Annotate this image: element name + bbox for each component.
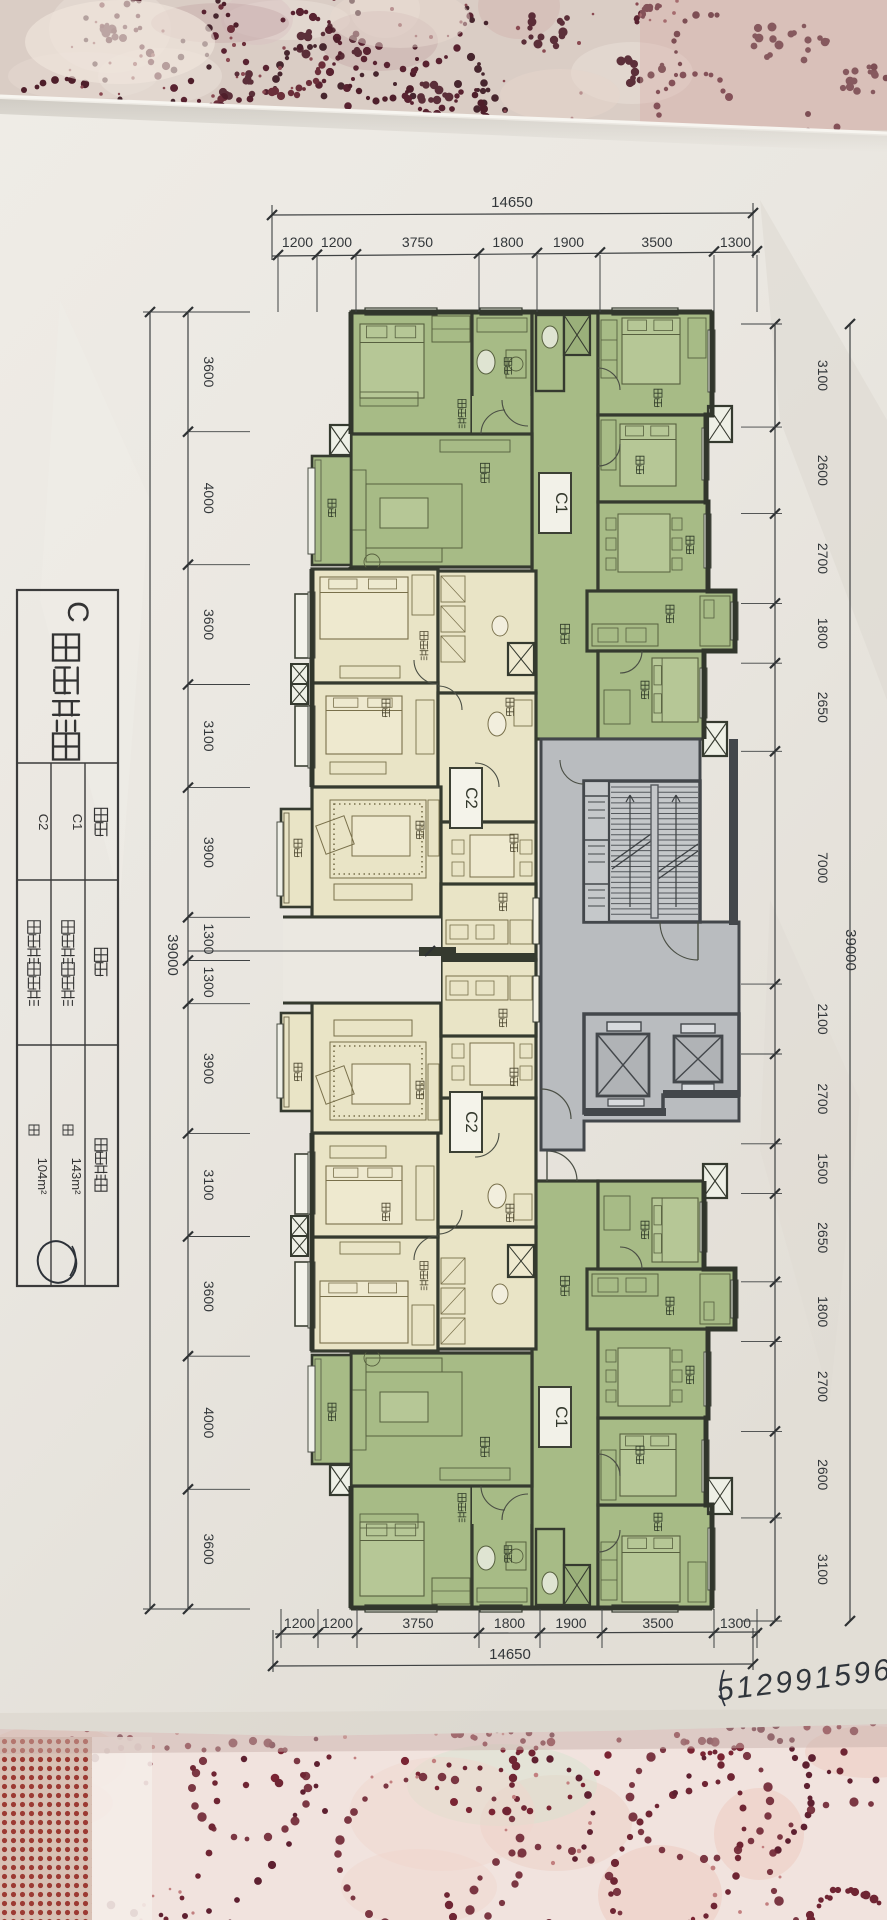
svg-text:3750: 3750 xyxy=(402,234,433,250)
svg-text:2100: 2100 xyxy=(815,1004,831,1035)
svg-text:3900: 3900 xyxy=(201,1053,217,1084)
svg-text:1300: 1300 xyxy=(201,967,217,998)
svg-text:3100: 3100 xyxy=(815,1554,831,1585)
svg-text:2700: 2700 xyxy=(815,1371,831,1402)
svg-text:1800: 1800 xyxy=(815,1296,831,1327)
svg-text:1900: 1900 xyxy=(553,234,584,250)
svg-text:14650: 14650 xyxy=(491,194,533,211)
svg-text:1200: 1200 xyxy=(282,234,313,250)
svg-text:4000: 4000 xyxy=(201,1407,217,1438)
svg-text:143m²: 143m² xyxy=(69,1158,84,1196)
svg-text:3900: 3900 xyxy=(201,837,217,868)
svg-text:1800: 1800 xyxy=(492,234,523,250)
svg-text:C1: C1 xyxy=(70,814,85,831)
svg-text:3500: 3500 xyxy=(642,1615,673,1631)
svg-text:1200: 1200 xyxy=(321,234,352,250)
svg-text:1300: 1300 xyxy=(720,1615,751,1631)
svg-text:39000: 39000 xyxy=(164,934,181,976)
svg-text:1900: 1900 xyxy=(555,1615,586,1631)
svg-text:C: C xyxy=(61,601,94,623)
svg-text:3100: 3100 xyxy=(201,1169,217,1200)
svg-text:4000: 4000 xyxy=(201,483,217,514)
svg-text:C2: C2 xyxy=(462,1111,481,1133)
svg-text:2650: 2650 xyxy=(815,1222,831,1253)
svg-text:3600: 3600 xyxy=(201,609,217,640)
svg-text:C1: C1 xyxy=(552,1406,571,1428)
svg-text:14650: 14650 xyxy=(489,1646,531,1663)
svg-text:1800: 1800 xyxy=(815,618,831,649)
svg-text:C1: C1 xyxy=(552,492,571,514)
svg-text:1800: 1800 xyxy=(494,1615,525,1631)
svg-text:3750: 3750 xyxy=(402,1615,433,1631)
svg-text:2650: 2650 xyxy=(815,692,831,723)
svg-text:7000: 7000 xyxy=(815,852,831,883)
svg-text:2700: 2700 xyxy=(815,1083,831,1114)
svg-text:39000: 39000 xyxy=(842,929,859,971)
svg-text:104m²: 104m² xyxy=(35,1158,50,1196)
svg-text:2600: 2600 xyxy=(815,1459,831,1490)
svg-text:2700: 2700 xyxy=(815,543,831,574)
svg-text:3500: 3500 xyxy=(641,234,672,250)
svg-text:1500: 1500 xyxy=(815,1153,831,1184)
svg-text:3100: 3100 xyxy=(201,720,217,751)
svg-text:C2: C2 xyxy=(462,787,481,809)
svg-text:1300: 1300 xyxy=(720,234,751,250)
svg-text:2600: 2600 xyxy=(815,455,831,486)
svg-text:1200: 1200 xyxy=(284,1615,315,1631)
svg-text:3600: 3600 xyxy=(201,1281,217,1312)
svg-text:1200: 1200 xyxy=(322,1615,353,1631)
svg-text:3600: 3600 xyxy=(201,356,217,387)
svg-text:3600: 3600 xyxy=(201,1534,217,1565)
svg-text:3100: 3100 xyxy=(815,360,831,391)
svg-text:C2: C2 xyxy=(36,814,51,831)
svg-text:1300: 1300 xyxy=(201,923,217,954)
